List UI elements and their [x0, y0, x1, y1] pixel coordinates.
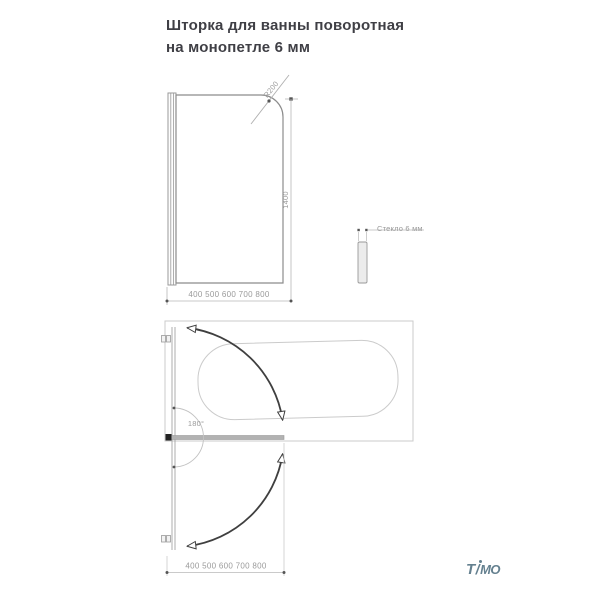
top-view-dim-end-dot — [166, 571, 169, 574]
thickness-tick — [357, 229, 359, 231]
swing-arrow-lower — [187, 454, 282, 546]
side-view-drawing: Стекло 6 мм — [357, 224, 424, 283]
wall-bracket-top — [167, 336, 171, 343]
hinge-pivot — [166, 434, 172, 441]
wall-bracket-bottom — [167, 536, 171, 543]
glass-thickness-label: Стекло 6 мм — [377, 224, 423, 233]
front-view-drawing: R200 1400 400 500 600 700 800 — [166, 75, 299, 305]
screen-open-position-bar — [168, 436, 284, 440]
top-view-dim-end-dot — [283, 571, 286, 574]
wall-bracket-bottom — [162, 536, 166, 543]
top-view-width-label: 400 500 600 700 800 — [185, 562, 267, 571]
brand-logo: T/MO — [466, 561, 500, 578]
wall-bracket-top — [162, 336, 166, 343]
page: Шторка для ванны поворотная на монопетле… — [0, 0, 600, 600]
height-dim-label: 1400 — [281, 191, 290, 209]
width-dim-label: 400 500 600 700 800 — [188, 290, 270, 299]
logo-i-dot — [479, 560, 482, 563]
technical-drawing: R200 1400 400 500 600 700 800 Стекло 6 м… — [0, 0, 600, 600]
side-glass-edge — [358, 242, 367, 283]
width-dim-end-dot — [290, 300, 293, 303]
top-view-drawing: 180° 400 500 600 700 800 — [162, 321, 414, 576]
front-glass-panel — [176, 95, 283, 283]
logo-letter-t: T — [466, 561, 475, 578]
rotation-angle-label: 180° — [188, 419, 204, 428]
arc-end-dot — [173, 407, 176, 410]
arc-end-dot — [173, 466, 176, 469]
front-hinge-profile — [168, 93, 176, 285]
width-dim-end-dot — [166, 300, 169, 303]
thickness-tick — [365, 229, 367, 231]
logo-letters-mo: MO — [480, 562, 500, 577]
